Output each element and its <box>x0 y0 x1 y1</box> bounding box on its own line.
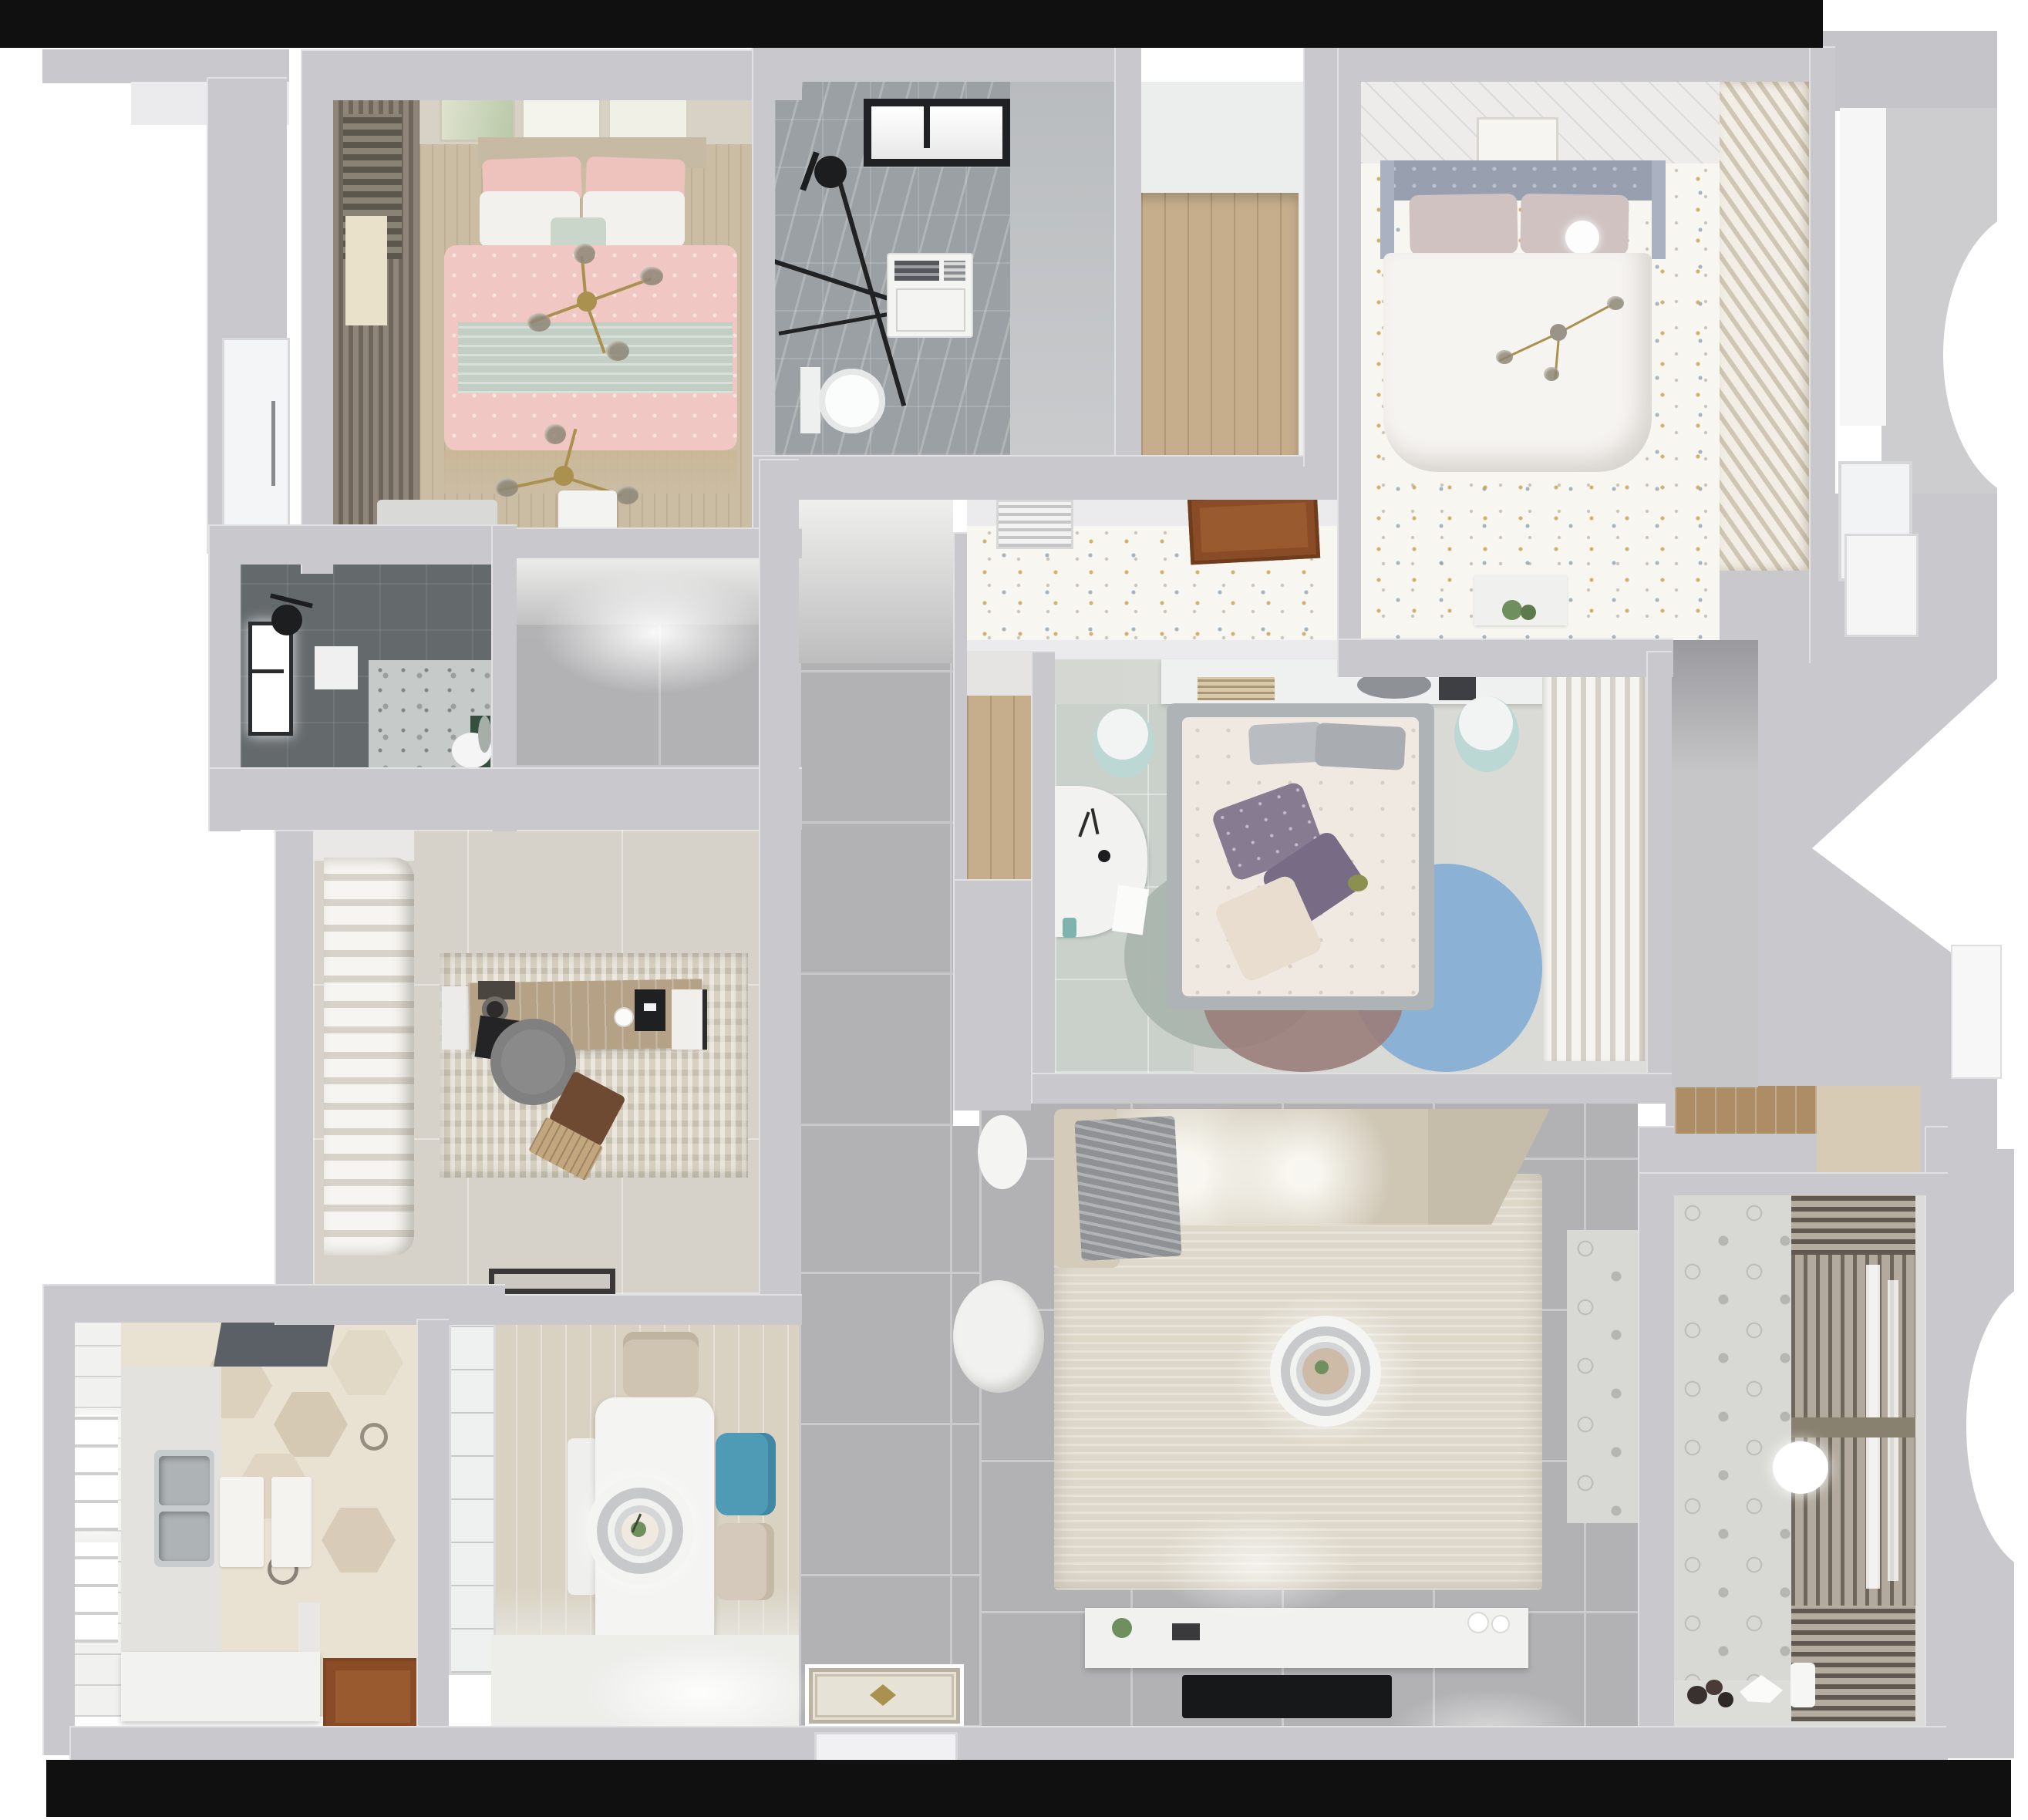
master-headboard-rail <box>1652 160 1666 259</box>
ac-vent-grille <box>996 500 1073 549</box>
wall <box>42 1284 505 1323</box>
kitchen-window <box>75 1415 118 1531</box>
balcony-toy <box>1718 1692 1733 1707</box>
kitchen-island-step <box>298 1603 320 1652</box>
dining-chair-blue <box>716 1433 776 1515</box>
floor-plan-render <box>0 0 2028 1820</box>
towel-square <box>315 646 358 689</box>
cutting-board <box>271 1477 312 1567</box>
dark-book <box>1439 676 1476 700</box>
bathroom-main-floor-light <box>1010 82 1114 455</box>
living-pattern-strip <box>1567 1230 1638 1523</box>
tv-console <box>1085 1608 1528 1668</box>
cutting-board <box>220 1477 264 1567</box>
mirror-round-sliver <box>478 716 491 753</box>
paper-on-desk <box>1112 885 1149 935</box>
bed2-pillow-gray <box>1315 723 1406 770</box>
wall <box>953 879 1031 1111</box>
wall <box>752 455 1361 500</box>
hex-ornament <box>360 1423 388 1451</box>
corridor-floor-right <box>1672 640 1758 1087</box>
kitchen-island-counter <box>121 1652 320 1721</box>
shower-head-dark <box>271 605 302 635</box>
hallway-glow <box>540 571 771 694</box>
hall-nook-cabinet <box>967 651 1032 696</box>
dining-chair-top <box>623 1332 699 1397</box>
toilet-tank <box>800 367 820 433</box>
window-art-view <box>345 216 387 325</box>
bathroom-dark-window <box>248 622 293 736</box>
storage-niche-floor <box>1817 1086 1920 1172</box>
wall <box>1114 46 1141 467</box>
console-plant <box>1112 1618 1132 1638</box>
kitchen-sink <box>154 1450 214 1567</box>
bottle-teal <box>1063 918 1076 938</box>
sprig-on-bed <box>1348 875 1368 891</box>
master-art-frame <box>1477 117 1558 165</box>
wall <box>1031 651 1055 1101</box>
balcony-pattern-tiles <box>1674 1195 1805 1680</box>
exterior-wall-top-right <box>1823 31 1997 111</box>
wall <box>416 1319 449 1751</box>
wall <box>1337 639 1673 677</box>
storage-niche-wood-shelf <box>1675 1086 1817 1134</box>
side-table-white <box>953 1280 1044 1393</box>
wall <box>953 532 967 895</box>
balcony-cup <box>1791 1663 1815 1707</box>
wall <box>1925 1126 1948 1771</box>
closet-nook-wood <box>1118 193 1299 459</box>
washer-unit <box>887 253 973 338</box>
ceiling-hatch-wood <box>1187 490 1320 565</box>
wall <box>752 46 1141 82</box>
console-vase <box>1493 1616 1508 1632</box>
balcony-toy <box>1706 1680 1723 1695</box>
books-on-shelf <box>1198 677 1275 700</box>
branch-chandelier-1 <box>532 254 663 378</box>
living-floor-glow <box>1157 1512 1357 1619</box>
wardrobe-louver-master <box>1720 82 1812 571</box>
branch-chandelier-master <box>1504 293 1619 378</box>
dining-chair-bottom <box>716 1523 774 1600</box>
wall <box>1638 1172 1948 1195</box>
console-vase <box>1469 1613 1487 1632</box>
plant-master <box>1502 600 1522 620</box>
console-device <box>1172 1623 1200 1640</box>
rack-crossbar <box>1791 1417 1915 1437</box>
pouf-teal-top <box>1459 696 1513 750</box>
wall <box>1337 46 1361 656</box>
study-side-unit <box>442 986 469 1050</box>
wall <box>1337 46 1835 82</box>
sofa-blanket <box>1074 1116 1181 1262</box>
hex-tile <box>274 1392 348 1457</box>
plant-master <box>1521 605 1536 620</box>
wall <box>1031 1073 1672 1104</box>
kitchen-window <box>75 1542 118 1643</box>
wall <box>208 767 802 830</box>
hallway-tiles-right <box>799 663 953 1126</box>
wall <box>301 49 802 100</box>
planter-shelf <box>1474 575 1567 625</box>
pendant-plant-sprig <box>1315 1360 1329 1374</box>
balcony-toy <box>1687 1686 1707 1704</box>
wardrobe-shelf-top <box>313 830 414 861</box>
tv <box>1182 1675 1392 1718</box>
door-left-leaf <box>222 338 290 535</box>
wall <box>1646 651 1672 1101</box>
hex-tile <box>322 1508 396 1572</box>
hallway-tiles-lower <box>799 1126 979 1727</box>
master-headboard-rail <box>1380 160 1394 259</box>
wall <box>1638 1126 1674 1771</box>
wall-bottom <box>69 1726 1946 1764</box>
wall <box>1809 46 1835 663</box>
door-white-right-edge <box>1951 945 2002 1079</box>
bed2-pillow-gray <box>1248 722 1325 766</box>
bathroom-window <box>864 99 1010 167</box>
doormat-study <box>489 1269 615 1294</box>
vase-white <box>978 1115 1027 1189</box>
desk-laptop <box>635 989 665 1031</box>
pouf-teal-top <box>1097 709 1148 760</box>
wardrobe-hanging-clothes <box>324 858 414 1255</box>
ball-lamp-balcony <box>1773 1441 1828 1494</box>
desk-knob <box>1098 850 1110 862</box>
wall <box>275 830 313 1325</box>
window-ledge-right <box>1840 108 1886 426</box>
bathroom-window-mullion <box>924 102 930 148</box>
wall <box>208 524 509 565</box>
wardrobe-bedroom-second <box>1542 652 1646 1061</box>
artifact-black-bottom <box>46 1760 2011 1817</box>
master-pillow <box>1409 194 1518 255</box>
ball-lamp-master <box>1565 221 1599 254</box>
wall <box>42 1284 75 1755</box>
rack-slats-top <box>1791 1195 1915 1255</box>
wall <box>301 49 333 574</box>
wall <box>1303 46 1337 467</box>
hex-tile <box>329 1330 403 1395</box>
front-door-wood <box>323 1658 423 1735</box>
desk-flower-cup <box>615 1009 632 1026</box>
toilet-bowl <box>819 369 885 433</box>
artifact-black-top <box>0 0 1823 48</box>
desk-magazine-stack <box>672 989 707 1050</box>
bathroom-dark-window-bar <box>250 669 284 673</box>
door-left-handle <box>271 401 275 486</box>
dining-cabinet-glass <box>449 1319 496 1675</box>
wall <box>759 459 799 1325</box>
door-corridor-leaf <box>1844 534 1919 637</box>
